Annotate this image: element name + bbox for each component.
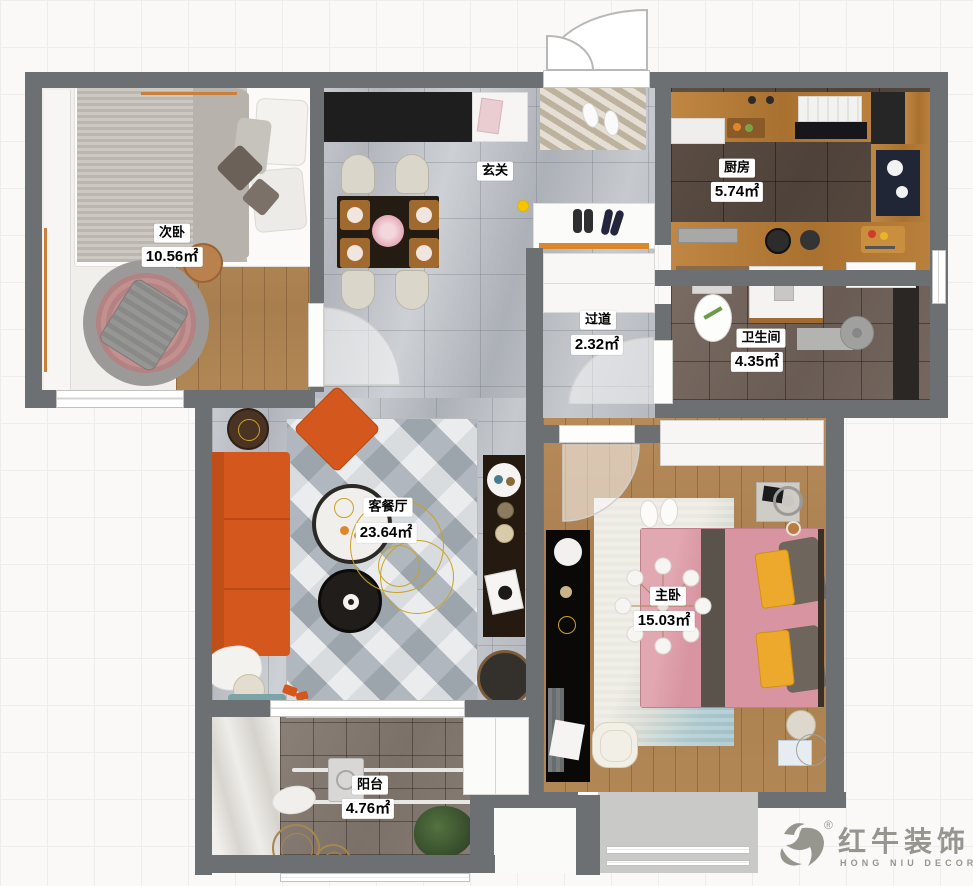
area-secondary-bedroom: 10.56㎡ — [142, 247, 203, 267]
pillow-yellow — [755, 629, 795, 688]
door-swing — [563, 445, 639, 521]
brand-subtitle: HONG NIU DECORATION — [840, 858, 973, 868]
entry-door-threshold — [543, 70, 650, 88]
wall-living-bottom-right — [465, 700, 530, 717]
table-flowers — [372, 215, 404, 247]
gold-decor — [238, 419, 260, 441]
floor-balcony-marble — [212, 717, 280, 855]
wardrobe-line — [661, 443, 823, 444]
food — [880, 232, 888, 240]
wall-balcony-bottom — [195, 855, 495, 873]
kitchen-sink-white — [671, 118, 725, 144]
shower-drain — [774, 285, 794, 301]
wall-top-right — [650, 72, 948, 88]
kitchen-bowl — [766, 96, 774, 104]
tall-cabinet-black — [871, 92, 905, 144]
decor-dot — [348, 599, 354, 605]
decor-plate — [487, 463, 521, 497]
wall-left-living — [195, 390, 212, 875]
bull-icon — [772, 818, 828, 872]
fruit — [733, 123, 741, 131]
label-master-bedroom: 主卧 — [650, 587, 686, 606]
round-rug-black — [477, 650, 533, 706]
wardrobe-master — [660, 420, 824, 466]
shower-screen — [893, 286, 919, 404]
wok-pan — [765, 228, 791, 254]
registered-mark: ® — [824, 818, 833, 832]
light-indicator-dot — [517, 200, 529, 212]
dining-chair — [341, 154, 375, 194]
cabinet-wood-strip — [905, 92, 930, 144]
decor-art — [477, 98, 504, 135]
area-kitchen: 5.74㎡ — [711, 182, 763, 202]
area-balcony: 4.76㎡ — [342, 799, 394, 819]
dining-chair — [395, 154, 429, 194]
shoe-cabinet — [533, 203, 655, 249]
decor-paper — [549, 720, 585, 761]
decor-ring — [796, 734, 828, 766]
window-secondary-bedroom — [56, 390, 184, 408]
gold-tray — [334, 498, 354, 518]
label-living-dining: 客餐厅 — [363, 498, 412, 517]
sideboard-black — [324, 92, 472, 142]
cabinet-white — [472, 92, 528, 142]
tv-console-living — [483, 455, 525, 637]
chair-cushion — [600, 730, 632, 762]
door-frame-master — [559, 425, 635, 443]
coffee-cup — [786, 521, 801, 536]
pompom-chandelier — [613, 556, 713, 656]
cabinet-divider — [544, 283, 654, 284]
hallway-storage-cabinet — [543, 253, 655, 313]
wall-bedroom-dining — [310, 88, 324, 305]
food — [868, 230, 876, 238]
gold-ring-decor — [378, 545, 420, 587]
fruit-tray — [727, 118, 765, 138]
shoe-cabinet-trim — [539, 243, 649, 249]
tv-cabinet-master — [546, 530, 590, 782]
wall-corridor-bath-stub — [655, 304, 671, 340]
entry-double-door — [545, 6, 649, 72]
stool-center — [852, 328, 862, 338]
place-setting — [340, 238, 370, 268]
desk-chair — [773, 486, 803, 516]
headboard-trim — [141, 92, 237, 95]
wall-master-top-left — [543, 425, 559, 443]
area-master-bedroom: 15.03㎡ — [634, 611, 695, 631]
label-kitchen: 厨房 — [719, 159, 755, 178]
door-swing — [324, 308, 400, 385]
window-balcony-sill — [280, 873, 470, 882]
fruit — [745, 124, 753, 132]
headboard — [818, 529, 824, 707]
cutting-board — [861, 226, 905, 253]
shower-trim — [749, 318, 823, 323]
area-bathroom: 4.35㎡ — [731, 352, 783, 372]
decor-leaf — [703, 306, 722, 319]
bed-secondary — [74, 85, 312, 267]
area-hallway: 2.32㎡ — [571, 335, 623, 355]
wall-kitchen-bath — [655, 270, 948, 286]
place-setting — [409, 238, 439, 268]
label-balcony: 阳台 — [352, 776, 388, 795]
door-frame-bathroom — [653, 340, 673, 404]
floorplan-canvas: 次卧 10.56㎡ 玄关 厨房 5.74㎡ 过道 2.32㎡ 卫生间 4.35㎡… — [0, 0, 973, 886]
sofa-seam — [224, 518, 290, 520]
sink-basin — [896, 186, 908, 198]
table-decor — [343, 594, 359, 610]
area-living-dining: 23.64㎡ — [356, 523, 417, 543]
bull-tail — [780, 848, 802, 866]
shoe-sneaker — [573, 209, 582, 233]
wall-left-bedroom — [25, 72, 42, 408]
label-bathroom: 卫生间 — [736, 329, 785, 348]
door-divider — [495, 718, 496, 794]
chair-seat — [782, 495, 794, 507]
window-bathroom — [932, 250, 946, 304]
cooktop — [795, 122, 867, 139]
brand-logo: ® 红牛装饰 HONG NIU DECORATION — [766, 812, 970, 880]
decor-dot — [506, 477, 515, 486]
decor-dot — [495, 524, 514, 543]
bay-window-sill — [606, 860, 750, 866]
door-frame-secondary-bedroom — [308, 303, 324, 387]
clothes-rail — [292, 768, 472, 772]
label-hallway: 过道 — [580, 311, 616, 330]
door-arc-master — [561, 443, 641, 523]
fruit — [340, 526, 349, 535]
side-table — [227, 408, 269, 450]
wall-entry-kitchen — [655, 88, 671, 245]
armchair-white — [592, 722, 638, 768]
label-entryway: 玄关 — [477, 162, 513, 181]
kitchen-sink-dark — [876, 150, 920, 216]
sofa-seam — [224, 588, 290, 590]
window-living — [270, 700, 465, 717]
gold-decor — [558, 616, 576, 634]
bay-window-sill — [606, 846, 750, 854]
range-hood — [798, 96, 862, 122]
sofa-orange — [212, 452, 290, 656]
kitchen-bowl — [748, 96, 756, 104]
place-setting — [409, 200, 439, 230]
wardrobe-secondary — [44, 90, 71, 390]
wall-master-right — [826, 418, 844, 808]
decor-dot — [560, 586, 572, 598]
wall-top-left — [25, 72, 543, 88]
knife — [865, 246, 895, 249]
wall-master-top-right — [635, 425, 660, 443]
magazine — [484, 569, 524, 615]
balcony-door — [463, 717, 529, 795]
label-secondary-bedroom: 次卧 — [154, 224, 190, 243]
pan — [800, 230, 820, 250]
decor-dot — [497, 502, 514, 519]
decor-dot — [494, 475, 503, 484]
wall-bath-bottom — [655, 400, 948, 418]
wardrobe-track — [44, 228, 47, 372]
magazine-dot — [497, 584, 514, 601]
decor-plate — [554, 538, 582, 566]
place-setting — [340, 200, 370, 230]
brand-name: 红牛装饰 — [838, 820, 970, 860]
shoe-sneaker — [584, 209, 593, 233]
wall-stub-bay-right — [576, 795, 600, 875]
cutlery-tray — [678, 228, 738, 243]
door-arc-secondary-bedroom — [324, 303, 404, 387]
bath-stool — [840, 316, 874, 350]
wall-living-bottom-left — [195, 700, 270, 717]
sofa-back — [212, 452, 224, 656]
toilet-bowl — [694, 294, 732, 342]
sink-basin — [887, 160, 903, 176]
